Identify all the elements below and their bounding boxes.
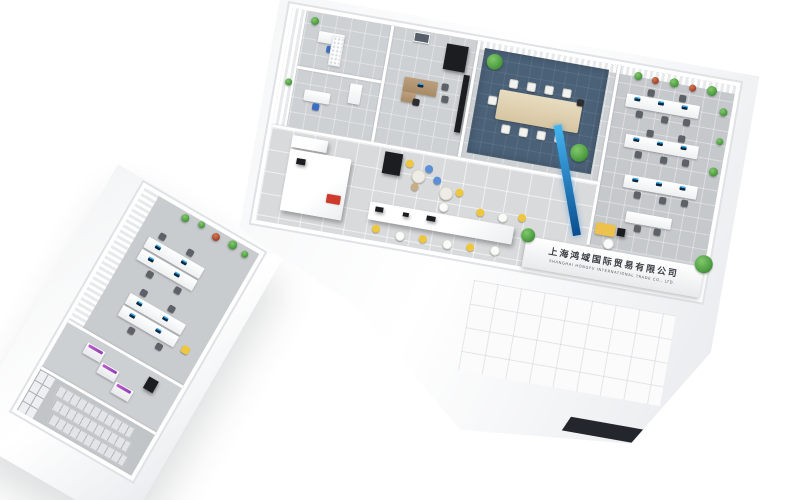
workstation-row bbox=[621, 166, 699, 210]
interior-wall bbox=[297, 66, 382, 84]
side-table bbox=[616, 228, 625, 237]
conference-chair bbox=[576, 99, 584, 107]
office-chair bbox=[145, 270, 155, 280]
office-chair bbox=[312, 103, 320, 111]
storage-device bbox=[96, 362, 119, 382]
workstation-cluster bbox=[116, 289, 188, 350]
office-chair bbox=[185, 248, 195, 258]
conference-chair bbox=[536, 130, 546, 140]
office-chair bbox=[126, 326, 136, 336]
workstation-row bbox=[622, 126, 700, 170]
office-chair bbox=[154, 342, 164, 352]
entrance-doorway bbox=[562, 417, 656, 446]
conference-chair bbox=[518, 127, 528, 137]
cafe-table bbox=[438, 185, 454, 201]
office-chair bbox=[633, 225, 641, 233]
reception-counter bbox=[280, 149, 352, 221]
office-chair bbox=[678, 135, 686, 143]
monitor bbox=[656, 182, 663, 187]
office-chair bbox=[139, 288, 149, 298]
desk bbox=[625, 211, 672, 230]
office-chair bbox=[660, 156, 668, 164]
conference-chair bbox=[544, 85, 554, 95]
conference-chair bbox=[508, 79, 518, 89]
bar-stool bbox=[394, 230, 406, 242]
shelf-plant bbox=[180, 213, 191, 224]
monitor bbox=[681, 105, 688, 110]
refrigerator bbox=[382, 151, 404, 176]
office-chair bbox=[173, 286, 183, 296]
lobby-floor bbox=[458, 280, 676, 406]
shelf-plant bbox=[211, 232, 222, 243]
workstation-cluster bbox=[134, 233, 206, 294]
storage-device bbox=[82, 342, 105, 362]
conference-chair bbox=[562, 88, 572, 98]
conference-chair bbox=[500, 124, 510, 134]
office-chair bbox=[661, 116, 669, 124]
hanging-plant bbox=[719, 108, 728, 117]
coffee-machine bbox=[375, 206, 384, 212]
bar-stool bbox=[517, 213, 526, 222]
office-chair bbox=[158, 232, 168, 242]
storage-cabinet bbox=[347, 83, 362, 105]
hanging-plant bbox=[716, 138, 724, 146]
bar-stool bbox=[418, 234, 427, 243]
kettle bbox=[403, 212, 410, 217]
cafe-stool bbox=[438, 201, 450, 213]
bar-stool bbox=[489, 245, 501, 257]
monitor bbox=[417, 83, 424, 88]
office-chair bbox=[647, 89, 655, 97]
hanging-plant bbox=[634, 71, 643, 80]
office-chair bbox=[634, 151, 642, 159]
hanging-plant bbox=[708, 167, 718, 177]
printer bbox=[143, 376, 159, 393]
monitor bbox=[634, 97, 641, 102]
cafe-stool bbox=[424, 164, 433, 173]
office-chair bbox=[646, 129, 654, 137]
device-glow bbox=[88, 344, 103, 355]
office-chair bbox=[681, 159, 689, 167]
waste-bin bbox=[180, 344, 191, 355]
guest-chair bbox=[441, 95, 449, 103]
hanging-plant bbox=[651, 76, 659, 84]
conference-chair bbox=[526, 82, 536, 92]
bar-stool bbox=[497, 212, 509, 224]
storage-device bbox=[110, 382, 133, 402]
desk bbox=[303, 89, 331, 104]
device-glow bbox=[116, 383, 131, 394]
cafe-stool bbox=[405, 159, 414, 168]
monitor bbox=[680, 145, 687, 150]
monitor bbox=[679, 186, 686, 191]
cafe-stool bbox=[455, 188, 464, 197]
office-chair bbox=[653, 228, 661, 236]
monitor bbox=[657, 141, 664, 146]
monitor bbox=[658, 101, 665, 106]
bar-stool bbox=[476, 208, 485, 217]
desk-printer bbox=[296, 158, 306, 165]
potted-plant bbox=[310, 16, 319, 25]
hanging-plant bbox=[669, 78, 679, 88]
office-chair bbox=[680, 199, 688, 207]
office-3d-floorplan: 上海鸿域国际贸易有限公司 SHANGHAI HONGYU INTERNATION… bbox=[0, 0, 800, 500]
office-chair bbox=[683, 119, 691, 127]
monitor bbox=[632, 178, 639, 183]
office-chair bbox=[635, 110, 643, 118]
office-chair bbox=[679, 94, 687, 102]
executive-chair bbox=[412, 98, 420, 106]
hanging-plant bbox=[689, 84, 697, 92]
office-chair bbox=[633, 191, 641, 199]
guest-chair bbox=[441, 83, 449, 91]
company-logo bbox=[326, 194, 341, 205]
office-chair bbox=[659, 197, 667, 205]
office-chair bbox=[167, 304, 177, 314]
shelf-plant bbox=[227, 239, 239, 251]
file-cabinet bbox=[443, 43, 469, 72]
hanging-plant bbox=[706, 85, 718, 97]
wall-picture bbox=[413, 32, 430, 45]
microwave bbox=[426, 215, 436, 221]
cafe-stool bbox=[433, 176, 442, 185]
bar-stool bbox=[465, 243, 474, 252]
bar-stool bbox=[442, 239, 454, 251]
device-glow bbox=[102, 364, 117, 375]
bar-stool bbox=[371, 224, 380, 233]
workstation-row bbox=[623, 85, 701, 129]
conference-chair bbox=[487, 95, 497, 105]
monitor bbox=[633, 137, 640, 142]
cafe-stool bbox=[410, 182, 419, 191]
shelf-plant bbox=[240, 249, 250, 259]
